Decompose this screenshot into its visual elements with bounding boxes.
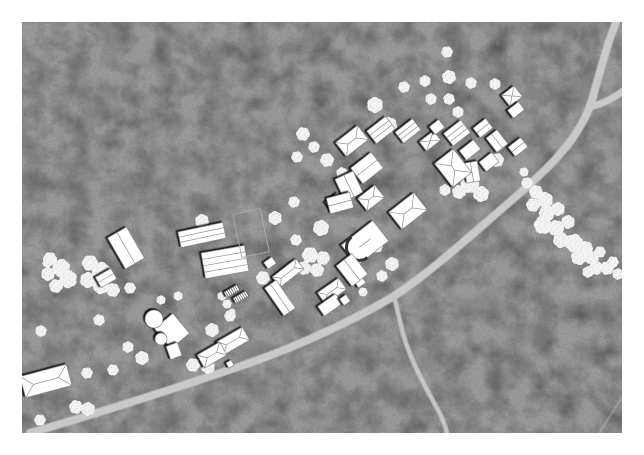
tree	[302, 247, 318, 262]
tree	[124, 283, 136, 294]
tree	[34, 415, 46, 426]
site-plan-page	[0, 0, 644, 455]
tower-circle	[145, 310, 163, 328]
site-plan-svg	[0, 0, 644, 455]
tower-circle	[155, 333, 167, 345]
tree	[594, 247, 606, 258]
tree	[224, 311, 236, 322]
map-area	[20, 22, 624, 433]
site-plan-figure	[0, 0, 644, 455]
